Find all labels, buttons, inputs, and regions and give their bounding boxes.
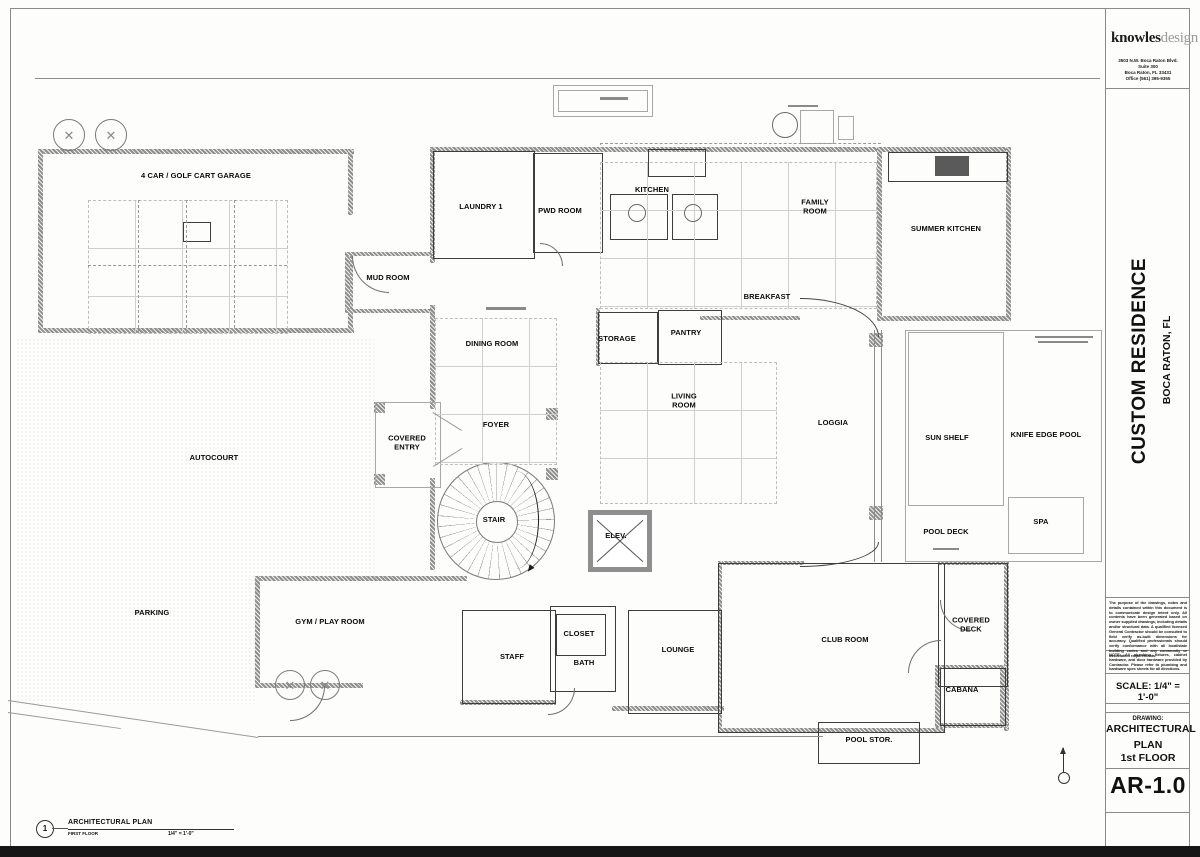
room-label-pantry: PANTRY (671, 329, 702, 338)
room-label-parking: PARKING (135, 609, 170, 618)
section-marker-circle (1058, 772, 1070, 784)
firm-logo: knowlesdesign (1096, 30, 1198, 47)
stair-arrowhead-icon (524, 564, 535, 576)
site-line (558, 90, 648, 112)
room-label-loggia: LOGGIA (818, 419, 848, 428)
wall-segment (345, 252, 350, 312)
room-label-pwd-room: PWD ROOM (538, 207, 582, 216)
footer-drawing-title: ARCHITECTURAL PLAN (68, 819, 152, 826)
annotation-mark (1035, 336, 1093, 338)
wall-outline (550, 606, 616, 692)
disclaimer-text: The purpose of the drawings, notes and d… (1109, 601, 1187, 659)
room-label-lounge: LOUNGE (662, 646, 695, 655)
elevator-shaft (588, 510, 652, 572)
site-line (800, 110, 834, 144)
annotation-mark (486, 307, 526, 310)
site-line (874, 330, 875, 562)
wall-outline (658, 310, 722, 365)
fixture-circle (684, 204, 702, 222)
fixture-circle (628, 204, 646, 222)
room-label-mud-room: MUD ROOM (366, 274, 409, 283)
room-label-spa: SPA (1033, 518, 1048, 527)
room-label-laundry-1: LAUNDRY 1 (459, 203, 502, 212)
door-swing (290, 686, 325, 721)
wall-segment (345, 309, 435, 313)
annotation-mark (1038, 341, 1088, 343)
room-label-kitchen: KITCHEN (635, 186, 669, 195)
room-label-covered-entry: COVERED ENTRY (388, 435, 426, 452)
site-line (881, 330, 882, 562)
room-label-family-room: FAMILY ROOM (801, 199, 828, 216)
wall-segment (38, 149, 43, 333)
equipment-fan-icon: ✕ (53, 119, 85, 151)
drawing-line (1105, 712, 1189, 713)
wall-outline (628, 610, 722, 714)
drawing-title-line: PLAN (1106, 739, 1190, 751)
door-swing (548, 688, 575, 715)
room-label-closet: CLOSET (563, 630, 594, 639)
site-line (258, 736, 823, 737)
room-label-staff: STAFF (500, 653, 524, 662)
wall-segment (877, 147, 882, 321)
dashed-line (600, 143, 881, 145)
room-label-living-room: LIVING ROOM (671, 393, 697, 410)
room-label-covered-deck: COVERED DECK (952, 617, 990, 634)
wall-outline (940, 668, 1006, 726)
annotation-mark (788, 105, 818, 107)
site-line (838, 116, 854, 140)
drawing-label: DRAWING: (1106, 716, 1190, 722)
room-label-storage: STORAGE (598, 335, 636, 344)
room-label-breakfast: BREAKFAST (744, 293, 791, 302)
sheet-bottom-bar (0, 846, 1200, 857)
room-label-gym-play-room: GYM / PLAY ROOM (295, 618, 364, 627)
annotation-mark (600, 97, 628, 100)
wall-segment (430, 478, 435, 570)
drawing-line (1105, 88, 1189, 89)
sheet-number: AR-1.0 (1106, 772, 1190, 799)
wall-segment (38, 149, 354, 154)
footer-scale: 1/4" = 1'-0" (168, 831, 194, 837)
site-diagonal-line (8, 700, 258, 738)
drawing-line (1105, 768, 1189, 769)
drawing-line (68, 829, 234, 830)
detail-number-bubble: 1 (36, 820, 54, 838)
project-location: BOCA RATON, FL (1161, 285, 1173, 435)
ceiling-grid (600, 362, 777, 504)
stair-direction-arrow (500, 471, 539, 569)
drawing-title-line: 1st FLOOR (1106, 752, 1190, 764)
site-line (908, 332, 1004, 506)
room-label-dining-room: DINING ROOM (466, 340, 519, 349)
drawing-title-line: ARCHITECTURAL (1106, 723, 1190, 735)
equipment-fan-icon: ✕ (95, 119, 127, 151)
drawing-line (52, 828, 68, 829)
project-title: CUSTOM RESIDENCE (1129, 246, 1151, 476)
room-label-foyer: FOYER (483, 421, 509, 430)
wall-segment (546, 468, 558, 480)
drawing-line (1105, 673, 1189, 674)
scale-label: SCALE: 1/4" = 1'-0" (1106, 681, 1190, 703)
room-label-club-room: CLUB ROOM (821, 636, 868, 645)
footer-drawing-subtitle: FIRST FLOOR (68, 831, 98, 836)
room-label-cabana: CABANA (945, 686, 978, 695)
site-line (935, 156, 969, 176)
architectural-sheet: ✕✕✕✕4 CAR / GOLF CART GARAGELAUNDRY 1PWD… (0, 0, 1200, 857)
site-line (35, 78, 1100, 79)
wall-segment (882, 316, 1011, 321)
dashed-line (88, 265, 287, 267)
firm-name-bold: knowles (1111, 30, 1161, 46)
annotation-mark (933, 548, 959, 550)
drawing-line (1105, 812, 1189, 813)
room-label-bath: BATH (574, 659, 595, 668)
drawing-line (1105, 597, 1189, 598)
wall-segment (255, 576, 260, 688)
autocourt-paving-texture (16, 338, 374, 704)
room-label-knife-edge-pool: KNIFE EDGE POOL (1011, 431, 1082, 440)
wall-outline (718, 563, 945, 733)
wall-segment (348, 149, 353, 215)
firm-address-line: Office (561) 395-9355 (1106, 76, 1190, 82)
fixture-circle (772, 112, 798, 138)
section-marker-line (1063, 748, 1064, 772)
room-label-summer-kitchen: SUMMER KITCHEN (911, 225, 981, 234)
firm-name-light: design (1161, 30, 1198, 46)
room-label-sun-shelf: SUN SHELF (925, 434, 968, 443)
room-label-4-car-golf-cart-garage: 4 CAR / GOLF CART GARAGE (141, 172, 251, 181)
room-label-pool-deck: POOL DECK (923, 528, 968, 537)
wall-segment (255, 576, 467, 581)
ceiling-grid (88, 200, 288, 334)
wall-outline (533, 153, 603, 253)
drawing-line (1105, 703, 1189, 704)
room-label-autocourt: AUTOCOURT (190, 454, 239, 463)
room-label-stair: STAIR (483, 516, 505, 525)
room-label-pool-stor: POOL STOR. (846, 736, 893, 745)
room-label-elev: ELEV. (605, 532, 626, 541)
floor-plan: ✕✕✕✕4 CAR / GOLF CART GARAGELAUNDRY 1PWD… (0, 0, 1200, 857)
note-text: NOTE: All plumbing fixtures, cabinet har… (1109, 653, 1187, 672)
